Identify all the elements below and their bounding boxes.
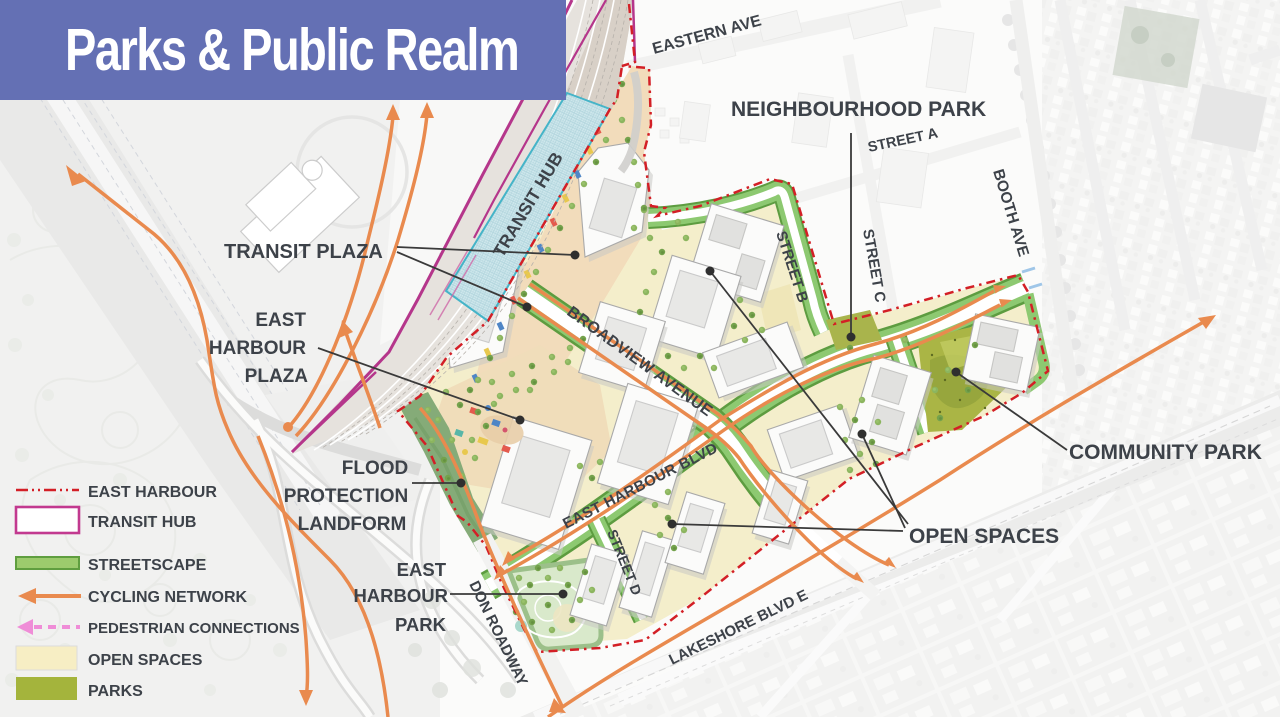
svg-text:TRANSIT HUB: TRANSIT HUB (88, 514, 196, 531)
svg-text:PARKS: PARKS (88, 683, 143, 700)
svg-text:STREETSCAPE: STREETSCAPE (88, 557, 207, 574)
svg-text:OPEN SPACES: OPEN SPACES (88, 652, 203, 669)
svg-text:EAST: EAST (255, 310, 306, 331)
svg-text:HARBOUR: HARBOUR (353, 585, 448, 606)
svg-text:Parks & Public Realm: Parks & Public Realm (65, 17, 518, 84)
svg-text:FLOOD: FLOOD (342, 458, 409, 479)
svg-text:EAST HARBOUR: EAST HARBOUR (88, 484, 217, 501)
svg-text:PEDESTRIAN CONNECTIONS: PEDESTRIAN CONNECTIONS (88, 620, 300, 637)
svg-text:LANDFORM: LANDFORM (298, 514, 407, 535)
svg-text:NEIGHBOURHOOD PARK: NEIGHBOURHOOD PARK (731, 98, 986, 121)
svg-text:PLAZA: PLAZA (245, 366, 309, 387)
svg-text:PARK: PARK (395, 614, 447, 635)
svg-text:TRANSIT PLAZA: TRANSIT PLAZA (224, 241, 383, 263)
svg-text:CYCLING NETWORK: CYCLING NETWORK (88, 589, 248, 606)
svg-text:EAST: EAST (397, 559, 447, 580)
svg-text:OPEN SPACES: OPEN SPACES (909, 525, 1059, 548)
svg-text:HARBOUR: HARBOUR (209, 338, 306, 359)
svg-text:PROTECTION: PROTECTION (284, 486, 409, 507)
svg-text:COMMUNITY PARK: COMMUNITY PARK (1069, 441, 1262, 464)
